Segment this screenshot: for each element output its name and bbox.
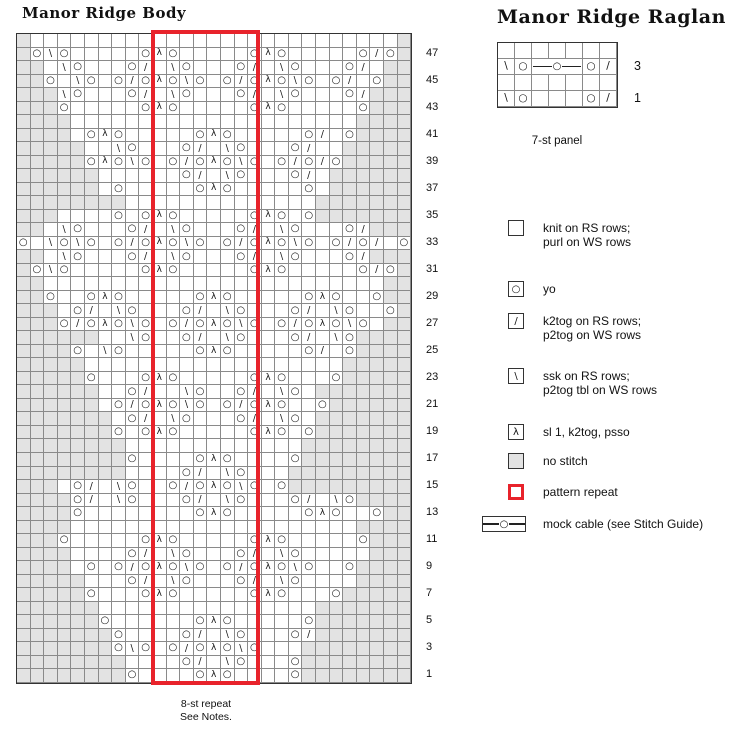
chart-cell-no-stitch: [302, 642, 316, 656]
chart-cell-ssk: \: [221, 494, 235, 508]
chart-cell-no-stitch: [357, 480, 371, 494]
chart-cell-no-stitch: [112, 196, 126, 210]
chart-cell-ssk: \: [275, 385, 289, 399]
chart-cell-empty: [194, 115, 208, 129]
chart-cell-empty: [85, 223, 99, 237]
chart-cell-empty: [207, 467, 221, 481]
chart-cell-empty: [221, 277, 235, 291]
chart-cell-ssk: \: [275, 223, 289, 237]
chart-cell-empty: [126, 358, 140, 372]
chart-cell-empty: [343, 575, 357, 589]
chart-cell-empty: [31, 237, 45, 251]
chart-cell-empty: [275, 331, 289, 345]
chart-cell-yo: ○: [289, 575, 303, 589]
chart-cell-empty: [153, 439, 167, 453]
chart-cell-no-stitch: [343, 467, 357, 481]
chart-cell-empty: [139, 277, 153, 291]
chart-cell-empty: [180, 102, 194, 116]
chart-cell-yo: ○: [248, 426, 262, 440]
chart-cell-no-stitch: [370, 480, 384, 494]
chart-cell-no-stitch: [112, 439, 126, 453]
chart-cell-no-stitch: [44, 412, 58, 426]
chart-cell-no-stitch: [384, 169, 398, 183]
chart-cell-k2tog: /: [357, 250, 371, 264]
chart-cell-yo: ○: [302, 156, 316, 170]
chart-cell-no-stitch: [17, 534, 31, 548]
chart-cell-yo: ○: [235, 304, 249, 318]
chart-cell-empty: [330, 345, 344, 359]
chart-cell-empty: [85, 210, 99, 224]
chart-cell-empty: [153, 34, 167, 48]
chart-cell-ssk: \: [167, 548, 181, 562]
chart-cell-k2tog: /: [194, 142, 208, 156]
chart-cell-empty: [126, 102, 140, 116]
chart-cell-no-stitch: [289, 467, 303, 481]
chart-cell-empty: [99, 561, 113, 575]
chart-cell-empty: [221, 250, 235, 264]
chart-cell-empty: [302, 358, 316, 372]
chart-cell-no-stitch: [398, 102, 412, 116]
chart-cell-empty: [126, 129, 140, 143]
chart-cell-empty: [262, 669, 276, 683]
chart-cell-no-stitch: [316, 196, 330, 210]
chart-cell-no-stitch: [357, 439, 371, 453]
chart-cell-no-stitch: [31, 129, 45, 143]
chart-cell-no-stitch: [302, 467, 316, 481]
chart-cell-no-stitch: [357, 358, 371, 372]
chart-cell-no-stitch: [330, 629, 344, 643]
chart-cell-no-stitch: [370, 250, 384, 264]
chart-cell-empty: [126, 588, 140, 602]
chart-cell-ssk: \: [221, 467, 235, 481]
chart-cell-no-stitch: [17, 291, 31, 305]
chart-cell-empty: [275, 656, 289, 670]
chart-cell-empty: [139, 358, 153, 372]
chart-cell-empty: [139, 115, 153, 129]
chart-cell-empty: [221, 115, 235, 129]
chart-cell-empty: [126, 426, 140, 440]
chart-cell-yo: ○: [275, 426, 289, 440]
chart-cell-empty: [343, 507, 357, 521]
chart-cell-empty: [275, 142, 289, 156]
chart-cell-empty: [153, 250, 167, 264]
chart-cell-no-stitch: [398, 223, 412, 237]
chart-cell-empty: [112, 372, 126, 386]
chart-cell-empty: [316, 75, 330, 89]
chart-cell-empty: [330, 48, 344, 62]
chart-cell-no-stitch: [398, 399, 412, 413]
chart-cell-empty: [99, 277, 113, 291]
chart-cell-k2tog: /: [194, 629, 208, 643]
chart-cell-empty: [194, 358, 208, 372]
chart-cell-no-stitch: [384, 372, 398, 386]
chart-cell-yo: ○: [289, 385, 303, 399]
chart-cell-yo: ○: [167, 264, 181, 278]
chart-cell-empty: [262, 250, 276, 264]
chart-cell-empty: [370, 61, 384, 75]
chart-cell-empty: [357, 548, 371, 562]
chart-cell-no-stitch: [71, 615, 85, 629]
chart-cell-yo: ○: [180, 88, 194, 102]
chart-cell-no-stitch: [58, 575, 72, 589]
chart-cell-no-stitch: [31, 156, 45, 170]
chart-cell-no-stitch: [316, 467, 330, 481]
chart-cell-no-stitch: [357, 575, 371, 589]
chart-cell-empty: [289, 34, 303, 48]
row-number-21: 21: [426, 398, 452, 412]
chart-cell-no-stitch: [31, 656, 45, 670]
chart-cell-no-stitch: [58, 629, 72, 643]
chart-cell-empty: [302, 88, 316, 102]
chart-cell-empty: [99, 210, 113, 224]
chart-cell-empty: [370, 318, 384, 332]
chart-cell-no-stitch: [384, 669, 398, 683]
chart-cell-no-stitch: [71, 588, 85, 602]
chart-cell-empty: [167, 196, 181, 210]
chart-cell-empty: [71, 548, 85, 562]
chart-cell-empty: [167, 304, 181, 318]
chart-cell-no-stitch: [58, 521, 72, 535]
chart-cell-ssk: \: [126, 331, 140, 345]
row-number-13: 13: [426, 506, 452, 520]
chart-cell-no-stitch: [384, 467, 398, 481]
chart-cell-yo: ○: [289, 142, 303, 156]
chart-cell-no-stitch: [398, 88, 412, 102]
chart-cell-yo: ○: [180, 656, 194, 670]
chart-cell-empty: [330, 277, 344, 291]
chart-cell-empty: [207, 34, 221, 48]
chart-cell-empty: [221, 34, 235, 48]
chart-cell-empty: [235, 669, 249, 683]
chart-cell-empty: [58, 210, 72, 224]
chart-cell-no-stitch: [17, 196, 31, 210]
chart-cell-empty: [275, 129, 289, 143]
chart-cell-empty: [330, 575, 344, 589]
chart-cell-sl1-k2tog-psso: λ: [262, 237, 276, 251]
chart-cell-empty: [343, 264, 357, 278]
chart-cell-empty: [44, 34, 58, 48]
chart-cell-empty: [262, 439, 276, 453]
row-number-5: 5: [426, 614, 452, 628]
chart-cell-no-stitch: [71, 156, 85, 170]
chart-cell-empty: [71, 115, 85, 129]
chart-cell-empty: [262, 467, 276, 481]
chart-cell-empty: [302, 521, 316, 535]
chart-cell-k2tog: /: [126, 75, 140, 89]
chart-cell-yo: ○: [180, 304, 194, 318]
chart-cell-no-stitch: [330, 399, 344, 413]
no-stitch-label: no stitch: [543, 454, 588, 468]
chart-cell-empty: [180, 183, 194, 197]
chart-cell-no-stitch: [370, 453, 384, 467]
chart-cell-no-stitch: [398, 277, 412, 291]
chart-cell-no-stitch: [357, 142, 371, 156]
chart-cell-empty: [248, 507, 262, 521]
chart-cell-empty: [275, 196, 289, 210]
chart-cell-yo: ○: [248, 318, 262, 332]
chart-cell-empty: [316, 115, 330, 129]
chart-cell-yo: ○: [112, 291, 126, 305]
chart-cell-empty: [126, 291, 140, 305]
chart-cell-ssk: \: [71, 75, 85, 89]
chart-cell-empty: [58, 480, 72, 494]
chart-cell-no-stitch: [85, 196, 99, 210]
chart-cell-empty: [302, 223, 316, 237]
chart-cell-no-stitch: [17, 345, 31, 359]
chart-cell-empty: [262, 115, 276, 129]
chart-cell-empty: [153, 88, 167, 102]
chart-cell-no-stitch: [99, 439, 113, 453]
chart-cell-empty: [330, 534, 344, 548]
chart-cell-empty: [302, 196, 316, 210]
chart-cell-empty: [139, 467, 153, 481]
chart-cell-no-stitch: [357, 615, 371, 629]
chart-cell-yo: ○: [398, 237, 412, 251]
chart-cell-ssk: \: [221, 142, 235, 156]
chart-cell-no-stitch: [17, 34, 31, 48]
chart-cell-no-stitch: [357, 115, 371, 129]
chart-cell-ssk: \: [112, 304, 126, 318]
chart-cell-no-stitch: [71, 169, 85, 183]
chart-cell-k2tog: /: [180, 318, 194, 332]
chart-cell-sl1-k2tog-psso: λ: [207, 453, 221, 467]
chart-cell-no-stitch: [99, 412, 113, 426]
chart-cell-sl1-k2tog-psso: λ: [207, 669, 221, 683]
chart-cell-yo: ○: [221, 129, 235, 143]
chart-cell-no-stitch: [85, 615, 99, 629]
chart-cell-yo: ○: [112, 426, 126, 440]
chart-cell-yo: ○: [235, 169, 249, 183]
chart-cell-no-stitch: [398, 507, 412, 521]
chart-cell-empty: [180, 345, 194, 359]
chart-cell-yo: ○: [167, 480, 181, 494]
chart-cell-yo: ○: [330, 291, 344, 305]
chart-cell-empty: [275, 642, 289, 656]
chart-cell-empty: [153, 196, 167, 210]
chart-cell-empty: [153, 169, 167, 183]
chart-cell-k2tog: /: [343, 237, 357, 251]
chart-cell-empty: [139, 291, 153, 305]
repeat-caption-line1: 8-st repeat: [140, 698, 272, 711]
chart-cell-sl1-k2tog-psso: λ: [207, 183, 221, 197]
chart-cell-empty: [235, 602, 249, 616]
chart-cell-empty: [221, 588, 235, 602]
chart-cell-no-stitch: [58, 331, 72, 345]
chart-cell-empty: [235, 277, 249, 291]
chart-cell-no-stitch: [17, 385, 31, 399]
chart-cell-no-stitch: [85, 642, 99, 656]
chart-cell-empty: [357, 507, 371, 521]
chart-cell-empty: [235, 534, 249, 548]
chart-cell-no-stitch: [384, 453, 398, 467]
chart-cell-no-stitch: [370, 88, 384, 102]
chart-cell-yo: ○: [302, 426, 316, 440]
chart-cell-no-stitch: [330, 169, 344, 183]
chart-cell-k2tog: /: [248, 385, 262, 399]
chart-cell-empty: [139, 142, 153, 156]
chart-cell-empty: [289, 277, 303, 291]
chart-cell-yo: ○: [44, 75, 58, 89]
chart-cell-empty: [221, 439, 235, 453]
chart-cell-no-stitch: [398, 304, 412, 318]
chart-cell-yo: ○: [85, 372, 99, 386]
chart-cell-yo: ○: [275, 561, 289, 575]
chart-cell-empty: [302, 250, 316, 264]
chart-cell-no-stitch: [289, 480, 303, 494]
chart-cell-empty: [139, 494, 153, 508]
raglan-caption: 7-st panel: [497, 135, 617, 147]
chart-cell-yo: ○: [85, 561, 99, 575]
chart-cell-empty: [99, 61, 113, 75]
chart-cell-empty: [126, 196, 140, 210]
raglan-cell-yo: ○: [583, 59, 600, 75]
chart-cell-empty: [207, 358, 221, 372]
chart-cell-yo: ○: [357, 102, 371, 116]
chart-cell-no-stitch: [31, 575, 45, 589]
chart-cell-yo: ○: [167, 534, 181, 548]
chart-cell-empty: [153, 480, 167, 494]
chart-cell-no-stitch: [112, 656, 126, 670]
chart-cell-yo: ○: [316, 399, 330, 413]
chart-cell-no-stitch: [58, 358, 72, 372]
chart-cell-yo: ○: [221, 156, 235, 170]
chart-cell-empty: [330, 548, 344, 562]
chart-cell-no-stitch: [71, 426, 85, 440]
chart-cell-empty: [207, 385, 221, 399]
chart-cell-no-stitch: [71, 439, 85, 453]
chart-cell-empty: [207, 602, 221, 616]
chart-cell-empty: [248, 169, 262, 183]
chart-cell-no-stitch: [343, 602, 357, 616]
chart-cell-no-stitch: [330, 656, 344, 670]
chart-cell-no-stitch: [44, 575, 58, 589]
chart-cell-empty: [153, 304, 167, 318]
chart-cell-empty: [153, 129, 167, 143]
row-number-27: 27: [426, 317, 452, 331]
chart-cell-empty: [99, 372, 113, 386]
chart-cell-yo: ○: [302, 75, 316, 89]
chart-cell-empty: [275, 521, 289, 535]
row-number-3: 3: [426, 641, 452, 655]
chart-cell-empty: [180, 291, 194, 305]
chart-cell-empty: [99, 588, 113, 602]
chart-cell-empty: [153, 115, 167, 129]
chart-cell-no-stitch: [370, 615, 384, 629]
chart-cell-no-stitch: [384, 588, 398, 602]
chart-cell-empty: [275, 345, 289, 359]
chart-cell-k2tog: /: [139, 412, 153, 426]
chart-cell-empty: [330, 358, 344, 372]
chart-cell-empty: [262, 548, 276, 562]
chart-cell-no-stitch: [384, 291, 398, 305]
chart-cell-no-stitch: [17, 480, 31, 494]
raglan-cell-empty: [549, 43, 566, 59]
chart-cell-sl1-k2tog-psso: λ: [262, 102, 276, 116]
chart-cell-k2tog: /: [139, 61, 153, 75]
chart-cell-empty: [112, 548, 126, 562]
chart-cell-empty: [194, 34, 208, 48]
chart-cell-empty: [207, 304, 221, 318]
chart-cell-yo: ○: [167, 561, 181, 575]
chart-cell-yo: ○: [289, 494, 303, 508]
chart-cell-yo: ○: [139, 331, 153, 345]
chart-cell-empty: [248, 602, 262, 616]
chart-cell-no-stitch: [31, 453, 45, 467]
chart-cell-no-stitch: [398, 318, 412, 332]
chart-cell-no-stitch: [343, 210, 357, 224]
chart-cell-no-stitch: [384, 629, 398, 643]
chart-cell-yo: ○: [71, 61, 85, 75]
chart-cell-ssk: \: [235, 318, 249, 332]
chart-cell-empty: [207, 372, 221, 386]
chart-cell-no-stitch: [384, 61, 398, 75]
chart-cell-sl1-k2tog-psso: λ: [262, 264, 276, 278]
chart-cell-no-stitch: [398, 291, 412, 305]
chart-cell-empty: [153, 575, 167, 589]
chart-cell-no-stitch: [357, 669, 371, 683]
chart-cell-empty: [262, 480, 276, 494]
chart-cell-no-stitch: [384, 88, 398, 102]
chart-cell-no-stitch: [85, 385, 99, 399]
chart-cell-no-stitch: [58, 453, 72, 467]
chart-cell-no-stitch: [357, 453, 371, 467]
chart-cell-empty: [262, 358, 276, 372]
chart-cell-no-stitch: [17, 142, 31, 156]
chart-cell-no-stitch: [71, 669, 85, 683]
chart-cell-yo: ○: [85, 237, 99, 251]
chart-cell-yo: ○: [194, 507, 208, 521]
chart-cell-no-stitch: [58, 494, 72, 508]
chart-cell-yo: ○: [85, 291, 99, 305]
chart-cell-empty: [302, 548, 316, 562]
chart-cell-empty: [302, 102, 316, 116]
chart-cell-sl1-k2tog-psso: λ: [207, 480, 221, 494]
chart-cell-empty: [112, 575, 126, 589]
chart-cell-no-stitch: [58, 642, 72, 656]
chart-cell-empty: [262, 656, 276, 670]
chart-cell-no-stitch: [17, 102, 31, 116]
chart-cell-sl1-k2tog-psso: λ: [207, 129, 221, 143]
chart-cell-no-stitch: [343, 629, 357, 643]
chart-cell-empty: [289, 439, 303, 453]
chart-cell-yo: ○: [357, 237, 371, 251]
chart-cell-ssk: \: [235, 642, 249, 656]
chart-cell-empty: [343, 534, 357, 548]
chart-cell-no-stitch: [384, 142, 398, 156]
chart-cell-empty: [316, 521, 330, 535]
chart-cell-ssk: \: [167, 250, 181, 264]
chart-cell-empty: [289, 345, 303, 359]
chart-cell-empty: [58, 304, 72, 318]
chart-cell-empty: [289, 588, 303, 602]
chart-cell-empty: [180, 507, 194, 521]
chart-cell-empty: [180, 588, 194, 602]
chart-cell-yo: ○: [167, 426, 181, 440]
chart-cell-ssk: \: [126, 318, 140, 332]
chart-cell-sl1-k2tog-psso: λ: [99, 291, 113, 305]
chart-cell-no-stitch: [17, 575, 31, 589]
chart-cell-ssk: \: [180, 75, 194, 89]
chart-cell-empty: [194, 548, 208, 562]
chart-cell-yo: ○: [235, 88, 249, 102]
chart-cell-no-stitch: [384, 250, 398, 264]
chart-cell-empty: [235, 426, 249, 440]
body-chart-grid: ○\○○λ○○λ○○/○\○○/\○○/\○○/○\○○/○λ○\○○/○λ○\…: [16, 33, 412, 684]
chart-cell-empty: [85, 548, 99, 562]
chart-cell-empty: [85, 34, 99, 48]
chart-cell-yo: ○: [126, 412, 140, 426]
chart-cell-empty: [31, 34, 45, 48]
